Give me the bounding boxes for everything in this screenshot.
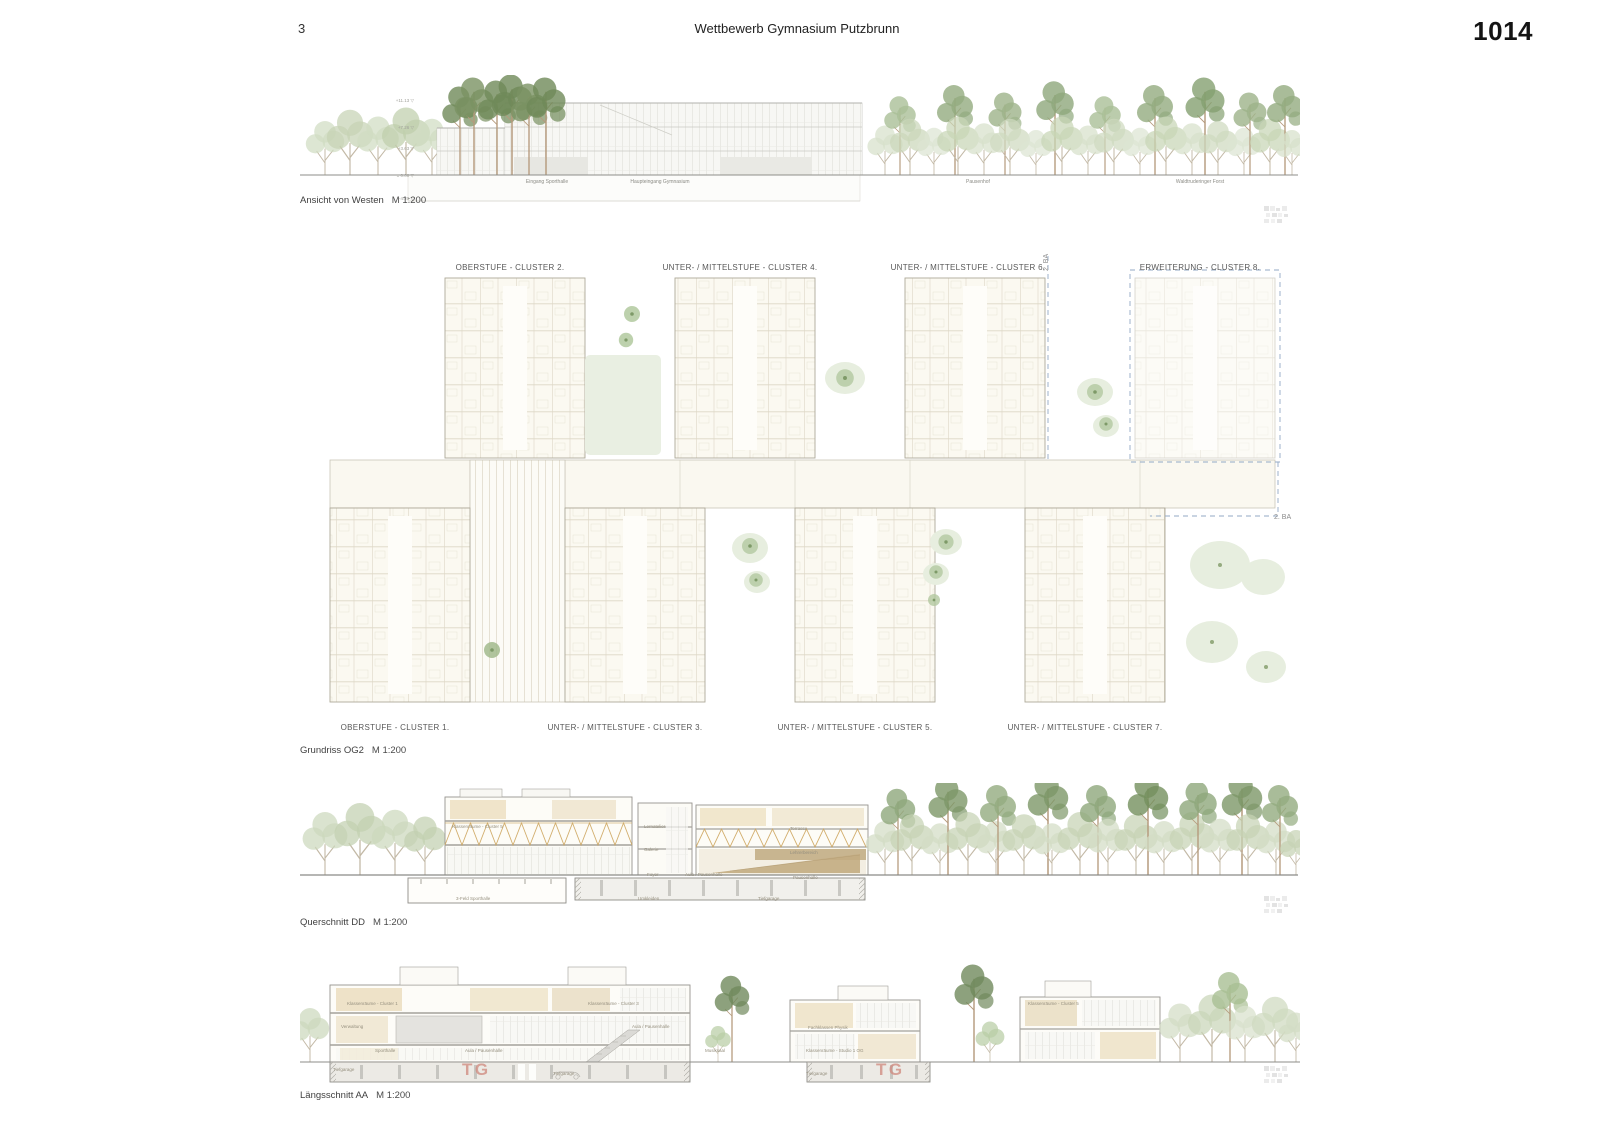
stamp-icon [1264, 206, 1290, 224]
plan-cluster-8 [1135, 278, 1275, 458]
plan-label-cluster-2: OBERSTUFE - CLUSTER 2. [456, 264, 565, 273]
elevation-caption: Ansicht von Westen M 1:200 [300, 196, 426, 206]
ls-room-label: Aula / Pausenhalle [632, 1025, 670, 1030]
elevation-label-forest: Waldtruderinger Forst [1176, 180, 1224, 186]
cs-building [445, 789, 868, 875]
plan-label-cluster-5: UNTER- / MITTELSTUFE - CLUSTER 5. [778, 724, 933, 733]
plan-cluster-5 [795, 508, 935, 702]
elevation-drawing [300, 75, 1300, 215]
cs-room-label: 3-Feld Sporthalle [456, 897, 490, 902]
cs-trees-left [303, 803, 446, 875]
level-mark: +3.63 ▽ [378, 147, 414, 152]
stamp-icon [1264, 896, 1290, 914]
ls-garage-label: Tiefgarage [333, 1068, 354, 1073]
level-mark: +7.26 ▽ [378, 126, 414, 131]
long-section-caption-title: Längsschnitt AA [300, 1091, 368, 1101]
floor-plan-drawing [300, 250, 1300, 746]
plan-caption-title: Grundriss OG2 [300, 746, 364, 756]
ls-building-right [1020, 981, 1160, 1062]
tg-label: TG [876, 1061, 905, 1080]
plan-caption-scale: M 1:200 [372, 746, 406, 756]
plan-label-cluster-1: OBERSTUFE - CLUSTER 1. [341, 724, 450, 733]
ls-room-label: Sporthalle [375, 1049, 395, 1054]
ls-room-label: Musiksaal [705, 1049, 725, 1054]
phase-label-right: 2. BA [1274, 514, 1291, 522]
long-section-caption: Längsschnitt AA M 1:200 [300, 1091, 410, 1101]
competition-board: 3 Wettbewerb Gymnasium Putzbrunn 1014 [0, 0, 1600, 1131]
ls-room-label: Klassenräume - Cluster 5 [1028, 1002, 1079, 1007]
cs-room-label: Umkleiden [638, 897, 659, 902]
plan-label-cluster-3: UNTER- / MITTELSTUFE - CLUSTER 3. [548, 724, 703, 733]
page-number: 3 [298, 22, 305, 36]
ls-garage [330, 1062, 930, 1082]
plan-cluster-6 [905, 278, 1045, 458]
plan-cluster-1 [330, 508, 470, 702]
ls-room-label: Klassenräume - Cluster 3 [588, 1002, 639, 1007]
elevation-trees-left [306, 108, 452, 176]
ls-room-label: Verwaltung [341, 1025, 363, 1030]
level-mark: +11.13 ▽ [378, 99, 414, 104]
elevation-caption-scale: M 1:200 [392, 196, 426, 206]
tg-label: TG [462, 1061, 491, 1080]
cross-section-caption-title: Querschnitt DD [300, 918, 365, 928]
entry-number: 1014 [1473, 17, 1533, 46]
stamp-icon [1264, 1066, 1290, 1084]
plan-label-cluster-4: UNTER- / MITTELSTUFE - CLUSTER 4. [663, 264, 818, 273]
plan-cluster-3 [565, 508, 705, 702]
elevation-label-entrance-sport: Eingang Sporthalle [526, 180, 568, 186]
ls-garage-label: Tiefgarage [806, 1072, 827, 1077]
plan-cluster-4 [675, 278, 815, 458]
cs-room-label: Galerie [644, 848, 659, 853]
cross-section-caption-scale: M 1:200 [373, 918, 407, 928]
elevation-label-main-entrance: Haupteingang Gymnasium [630, 180, 689, 186]
ls-room-label: Aula / Pausenhalle [465, 1049, 503, 1054]
ls-room-label: Klassenräume - Studio 1 OG [806, 1049, 864, 1054]
plan-cluster-2 [445, 278, 585, 458]
cross-section-drawing [300, 783, 1300, 908]
long-section-caption-scale: M 1:200 [376, 1091, 410, 1101]
ls-garage-label: Tiefgarage [553, 1072, 574, 1077]
cross-section-caption: Querschnitt DD M 1:200 [300, 918, 407, 928]
ls-room-label: Klassenräume - Cluster 1 [347, 1002, 398, 1007]
plan-label-cluster-8: ERWEITERUNG - CLUSTER 8. [1140, 264, 1260, 273]
cs-forest-right [866, 783, 1300, 875]
cs-room-label: Pausenhalle [793, 876, 818, 881]
plan-label-cluster-7: UNTER- / MITTELSTUFE - CLUSTER 7. [1008, 724, 1163, 733]
plan-hall [470, 460, 565, 702]
cs-room-label: Klassenräume - Cluster 5 [452, 825, 503, 830]
plan-cluster-7 [1025, 508, 1165, 702]
cs-room-label: Aula / Pausenhalle [685, 873, 723, 878]
cs-room-label: Lehrerbereich [790, 851, 818, 856]
ls-room-label: Fachklassen Physik [808, 1026, 848, 1031]
sheet-title: Wettbewerb Gymnasium Putzbrunn [695, 22, 900, 36]
elevation-label-schoolyard: Pausenhof [966, 180, 990, 186]
elevation-forest-right [867, 78, 1300, 176]
cs-room-label: Terrasse [790, 827, 807, 832]
elevation-caption-title: Ansicht von Westen [300, 196, 384, 206]
plan-label-cluster-6: UNTER- / MITTELSTUFE - CLUSTER 6. [891, 264, 1046, 273]
phase-label-vertical: 2. BA [1043, 254, 1051, 271]
cs-room-label: Lernatelier [644, 825, 665, 830]
cs-room-label: Foyer [647, 873, 659, 878]
level-mark: ± 0.00 ▽ [378, 174, 414, 179]
cs-room-label: Tiefgarage [758, 897, 779, 902]
long-section-drawing [300, 950, 1300, 1090]
plan-caption: Grundriss OG2 M 1:200 [300, 746, 406, 756]
